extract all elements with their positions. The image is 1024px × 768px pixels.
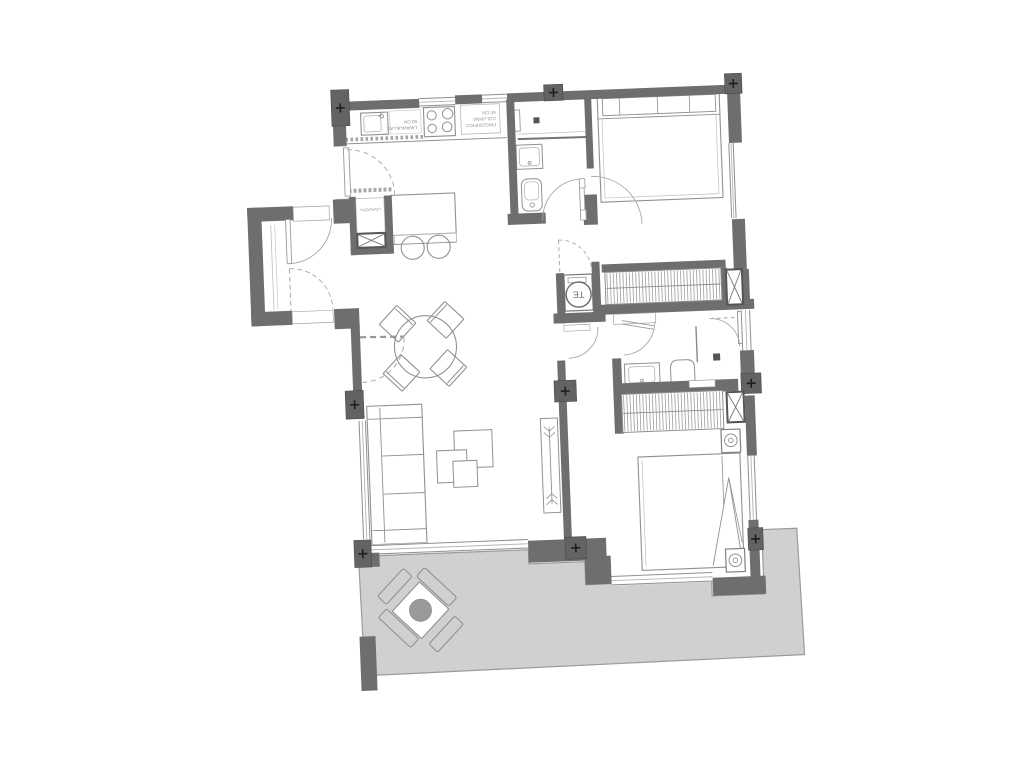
- svg-text:60 CM: 60 CM: [482, 110, 496, 116]
- svg-text:COLUMNA: COLUMNA: [472, 116, 496, 122]
- svg-text:60 CM: 60 CM: [404, 119, 417, 125]
- svg-text:TE: TE: [573, 289, 585, 299]
- svg-text:LAVADORA: LAVADORA: [360, 207, 382, 213]
